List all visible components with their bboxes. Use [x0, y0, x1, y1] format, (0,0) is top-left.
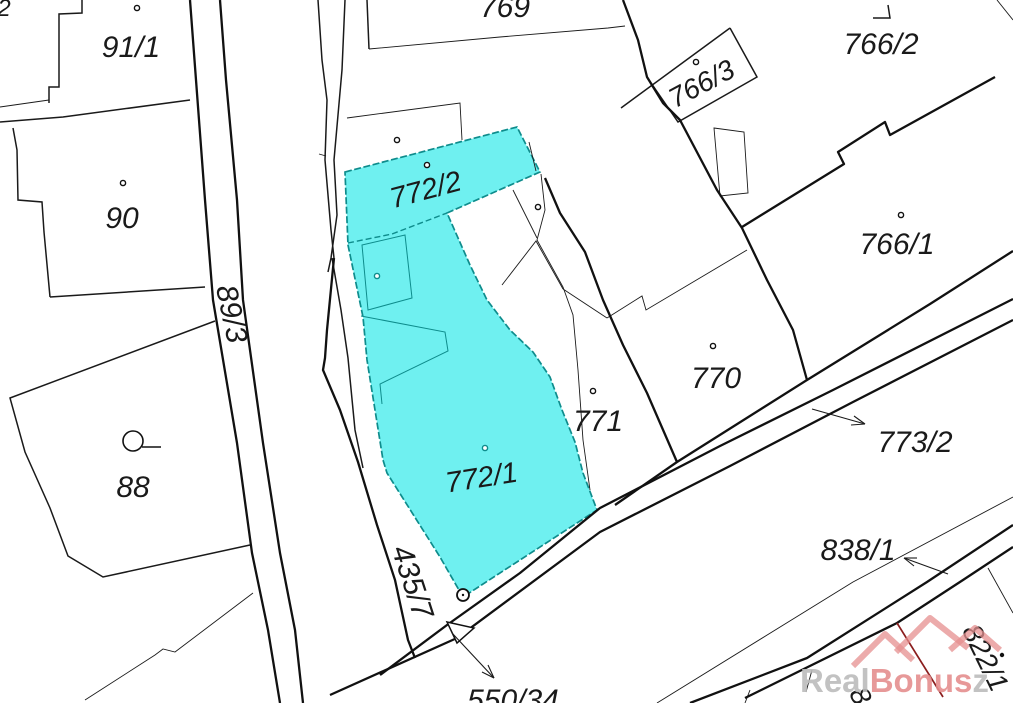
cadastral-map-viewport[interactable]: 291/19089/388769766/3766/2766/1770771772…	[0, 0, 1013, 703]
building-dot-symbol	[710, 343, 715, 348]
parcel-label-90: 90	[105, 202, 139, 235]
parcel-label-838-1: 838/1	[820, 534, 895, 567]
parcel-label-769: 769	[480, 0, 530, 24]
arrow-773-2	[812, 409, 865, 425]
parcel-label-770: 770	[691, 362, 741, 395]
highlighted-parcel-772[interactable]	[345, 127, 597, 597]
watermark-tail-part: z	[972, 662, 989, 699]
parcel-label-766-2: 766/2	[843, 28, 918, 61]
parcel-label-89-3: 89/3	[209, 282, 253, 346]
building-dot-symbol	[424, 162, 429, 167]
parcel-label-550-34: 550/34	[467, 684, 559, 703]
parcel-label-771: 771	[573, 405, 623, 438]
well-symbol	[123, 431, 143, 451]
building-dot-symbol	[898, 212, 903, 217]
building-dot-symbol	[693, 59, 698, 64]
arrow-550-34	[452, 633, 494, 678]
watermark-text: RealBonusz	[800, 662, 989, 699]
building-dot-symbol	[394, 137, 399, 142]
building-dot-symbol	[374, 273, 379, 278]
watermark-gray-part: Real	[800, 662, 870, 699]
parcel-label-88: 88	[116, 471, 150, 504]
parcel-label-2: 2	[0, 0, 11, 22]
parcel-label-773-2: 773/2	[877, 426, 952, 459]
boundary-point-center	[462, 594, 464, 596]
parcel-label-435-7: 435/7	[385, 541, 440, 624]
building-dot-symbol	[590, 388, 595, 393]
building-dot-symbol	[482, 445, 487, 450]
parcel-label-766-1: 766/1	[859, 228, 934, 261]
building-dot-symbol	[120, 180, 125, 185]
parcel-label-91-1: 91/1	[102, 31, 160, 64]
major-boundary-lines	[190, 0, 1013, 703]
parcel-772-shape[interactable]	[345, 127, 597, 597]
building-dot-symbol	[134, 5, 139, 10]
watermark-red-part: Bonus	[870, 662, 973, 699]
building-dot-symbol	[535, 204, 540, 209]
cadastral-map-canvas[interactable]: 291/19089/388769766/3766/2766/1770771772…	[0, 0, 1013, 703]
parcel-label-766-3: 766/3	[663, 53, 740, 113]
arrow-838-1	[904, 558, 948, 574]
